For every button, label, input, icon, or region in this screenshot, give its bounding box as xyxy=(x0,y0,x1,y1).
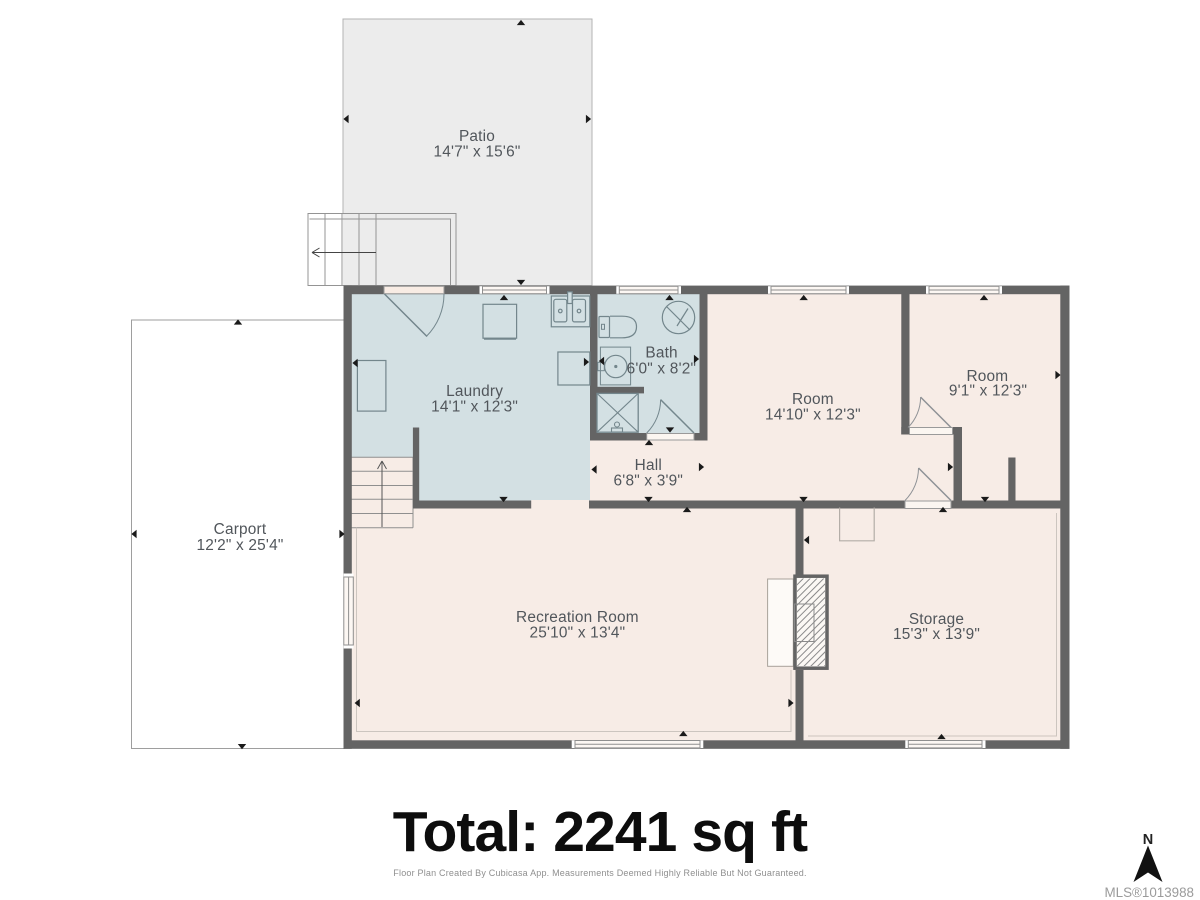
svg-text:15'3" x 13'9": 15'3" x 13'9" xyxy=(893,626,980,643)
svg-text:6'0" x 8'2": 6'0" x 8'2" xyxy=(627,360,697,377)
svg-text:Bath: Bath xyxy=(645,344,677,361)
svg-text:14'1" x 12'3": 14'1" x 12'3" xyxy=(431,398,518,415)
svg-text:6'8" x 3'9": 6'8" x 3'9" xyxy=(614,472,684,489)
svg-text:Room: Room xyxy=(792,391,834,408)
svg-text:Carport: Carport xyxy=(214,521,267,538)
svg-text:9'1" x 12'3": 9'1" x 12'3" xyxy=(949,383,1027,400)
svg-text:14'10" x 12'3": 14'10" x 12'3" xyxy=(765,406,861,423)
svg-text:Recreation Room: Recreation Room xyxy=(516,609,639,626)
svg-text:14'7" x 15'6": 14'7" x 15'6" xyxy=(433,143,520,160)
svg-text:12'2" x 25'4": 12'2" x 25'4" xyxy=(196,537,283,554)
svg-text:25'10" x 13'4": 25'10" x 13'4" xyxy=(530,625,626,642)
